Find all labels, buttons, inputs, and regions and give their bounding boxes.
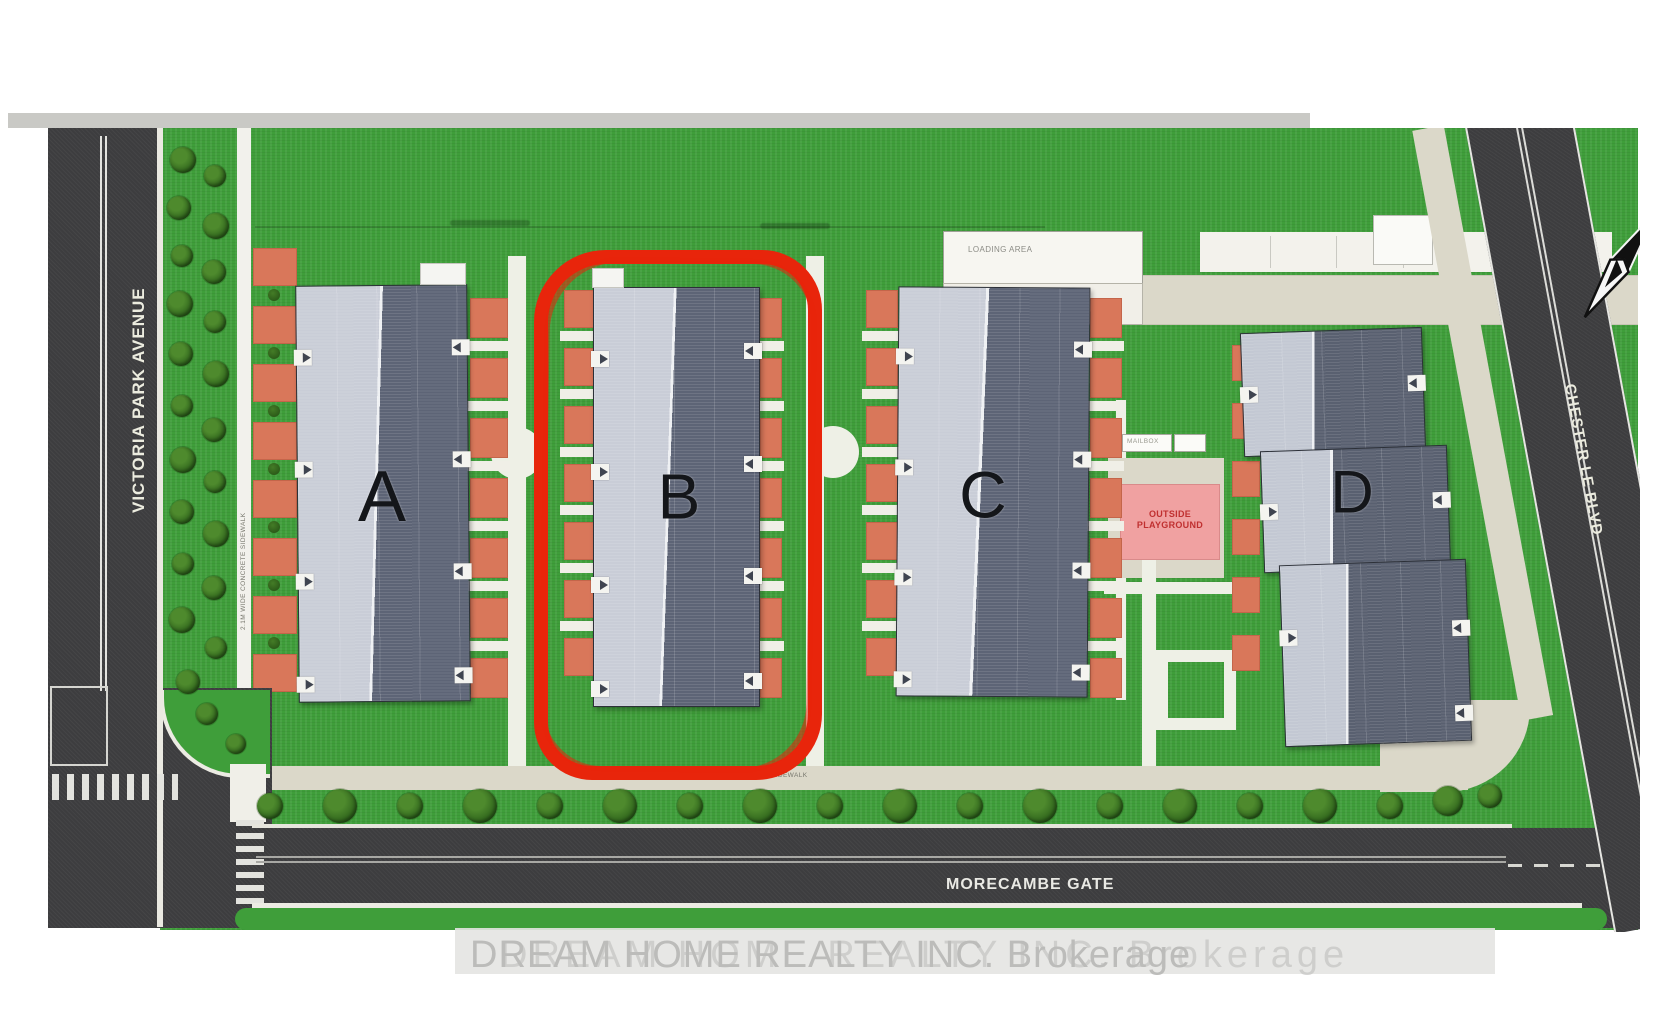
watermark-text: DREAM HOME REALTY INC. Brokerage — [470, 934, 1191, 977]
tree-icon — [170, 447, 196, 473]
tree-icon — [677, 793, 703, 819]
tree-icon — [817, 793, 843, 819]
entrance-notch — [1407, 375, 1426, 392]
walkway-stub — [466, 401, 510, 411]
property-line — [255, 226, 1045, 228]
tree-icon — [170, 500, 194, 524]
entrance-arrow-icon — [1075, 345, 1083, 355]
patio-terrace — [1090, 298, 1122, 338]
patio-terrace — [1090, 598, 1122, 638]
patio-terrace — [253, 480, 297, 518]
walkway-stub — [466, 641, 510, 651]
tree-icon — [463, 789, 497, 823]
shrub-icon — [268, 405, 280, 417]
entrance-notch — [1279, 630, 1298, 647]
building-b-highlight-circle — [534, 250, 822, 780]
patio-terrace — [1232, 461, 1260, 497]
loading-area-label: LOADING AREA — [968, 245, 1032, 254]
morecambe-centerline — [256, 861, 1506, 863]
mailbox-label: MAILBOX — [1127, 438, 1159, 445]
entrance-notch — [294, 349, 312, 365]
tree-icon — [171, 245, 193, 267]
tree-icon — [167, 196, 191, 220]
utility-box — [1174, 434, 1206, 452]
courtyard-square — [1156, 650, 1236, 730]
tree-icon — [196, 703, 218, 725]
entrance-arrow-icon — [904, 462, 912, 472]
playground-label-line2: PLAYGROUND — [1121, 520, 1219, 531]
street-label-morecambe: MORECAMBE GATE — [946, 876, 1114, 894]
patio-terrace — [470, 418, 508, 458]
walkway-stub — [862, 389, 900, 399]
walkway-stub — [1086, 461, 1124, 471]
tree-icon — [1303, 789, 1337, 823]
site-plan-page: LOADING AREA MAILBOX OUTSIDE PLAYGROUND … — [0, 0, 1680, 1034]
entrance-notch — [297, 677, 315, 693]
walkway-stub — [466, 521, 510, 531]
entrance-notch — [1072, 664, 1090, 680]
sidewalk-south — [252, 766, 1468, 790]
patio-terrace — [470, 358, 508, 398]
tree-icon — [603, 789, 637, 823]
entrance-arrow-icon — [1434, 495, 1442, 505]
top-margin — [1310, 110, 1640, 128]
patio-terrace — [253, 538, 297, 576]
patio-terrace — [253, 248, 297, 286]
entrance-arrow-icon — [303, 352, 311, 362]
stall-tick — [1336, 236, 1337, 268]
entrance-notch — [896, 349, 914, 365]
walkway-stub — [862, 331, 900, 341]
tree-icon — [167, 291, 193, 317]
vp-centerline — [100, 136, 102, 691]
entrance-notch — [453, 452, 471, 468]
entrance-notch — [895, 459, 913, 475]
vp-centerline — [105, 136, 107, 691]
walkway-stub — [862, 621, 900, 631]
tree-icon — [172, 553, 194, 575]
entrance-notch — [1074, 342, 1092, 358]
courtyard-path — [508, 256, 526, 768]
walkway-stub — [1086, 401, 1124, 411]
tree-icon — [203, 521, 229, 547]
entrance-notch — [1432, 492, 1451, 509]
walkway-stub — [466, 581, 510, 591]
entrance-arrow-icon — [456, 670, 464, 680]
patio-terrace — [1090, 658, 1122, 698]
patio-terrace — [866, 290, 898, 328]
building-a-label: A — [358, 461, 406, 533]
morecambe-centerline — [256, 856, 1506, 858]
entrance-notch — [455, 667, 473, 683]
curb-west — [157, 127, 163, 927]
patio-terrace — [866, 580, 898, 618]
entrance-arrow-icon — [304, 464, 312, 474]
tree-icon — [204, 311, 226, 333]
patio-terrace — [253, 364, 297, 402]
tree-icon — [1023, 789, 1057, 823]
tree-icon — [169, 342, 193, 366]
patio-terrace — [1232, 635, 1260, 671]
stall-tick — [1270, 236, 1271, 268]
street-label-victoria-park: VICTORIA PARK AVENUE — [129, 293, 155, 513]
entrance-notch — [1073, 452, 1091, 468]
tree-icon — [176, 670, 200, 694]
victoria-park-road — [48, 127, 160, 928]
tree-icon — [169, 607, 195, 633]
tree-icon — [226, 734, 246, 754]
entrance-arrow-icon — [1249, 390, 1257, 400]
tree-icon — [204, 165, 226, 187]
boulevard-strip — [235, 908, 1607, 930]
patio-terrace — [866, 406, 898, 444]
entrance-notch — [1072, 562, 1090, 578]
patio-terrace — [253, 654, 297, 692]
curb-morecambe-north — [252, 824, 1512, 828]
entrance-arrow-icon — [1288, 633, 1296, 643]
shrub-icon — [268, 521, 280, 533]
patio-terrace — [866, 348, 898, 386]
patio-terrace — [253, 306, 297, 344]
playground-label-line1: OUTSIDE — [1121, 509, 1219, 520]
site-plan-map: LOADING AREA MAILBOX OUTSIDE PLAYGROUND … — [0, 0, 1680, 1034]
patio-terrace — [866, 464, 898, 502]
shrub-icon — [268, 347, 280, 359]
tree-icon — [205, 637, 227, 659]
building-d-label: D — [1330, 463, 1373, 523]
tree-icon — [1433, 786, 1463, 816]
tree-icon — [883, 789, 917, 823]
entrance-notch — [894, 569, 912, 585]
entrance-arrow-icon — [453, 343, 461, 353]
tree-icon — [397, 793, 423, 819]
patio-terrace — [1090, 538, 1122, 578]
survey-note-smudge — [450, 220, 530, 226]
tree-icon — [957, 793, 983, 819]
patio-terrace — [1090, 418, 1122, 458]
patio-terrace — [1090, 358, 1122, 398]
building-d-block1 — [1240, 327, 1426, 457]
walkway-stub — [862, 447, 900, 457]
entrance-arrow-icon — [905, 352, 913, 362]
tree-icon — [202, 576, 226, 600]
patio-terrace — [253, 596, 297, 634]
entrance-arrow-icon — [1453, 623, 1461, 633]
patio-terrace — [470, 538, 508, 578]
entrance-notch — [894, 671, 912, 687]
tree-icon — [1377, 793, 1403, 819]
shrub-icon — [268, 579, 280, 591]
survey-note-smudge — [760, 223, 830, 229]
outside-playground: OUTSIDE PLAYGROUND — [1120, 484, 1220, 560]
entrance-notch — [1452, 620, 1471, 637]
entrance-arrow-icon — [1409, 378, 1417, 388]
building-c-label: C — [959, 461, 1007, 527]
walkway-stub — [466, 461, 510, 471]
entrance-notch — [452, 339, 470, 355]
tree-icon — [202, 418, 226, 442]
shrub-icon — [268, 463, 280, 475]
entrance-arrow-icon — [1456, 708, 1464, 718]
courtyard-path — [1142, 560, 1156, 766]
patio-terrace — [253, 422, 297, 460]
entrance-notch — [1260, 504, 1279, 521]
tree-icon — [203, 361, 229, 387]
entrance-arrow-icon — [1073, 565, 1081, 575]
entrance-notch — [1240, 387, 1259, 404]
patio-terrace — [470, 598, 508, 638]
patio-terrace — [470, 298, 508, 338]
tree-icon — [203, 213, 229, 239]
shrub-icon — [268, 289, 280, 301]
utility-pad — [1373, 215, 1433, 265]
building-d-block3 — [1279, 559, 1472, 747]
tree-icon — [170, 147, 196, 173]
tree-icon — [1163, 789, 1197, 823]
crosswalk-west — [52, 774, 178, 800]
patio-terrace — [470, 658, 508, 698]
tree-icon — [743, 789, 777, 823]
top-border-bar — [8, 113, 1310, 128]
patio-terrace — [1232, 577, 1260, 613]
tree-icon — [323, 789, 357, 823]
walkway-stub — [862, 505, 900, 515]
entrance-arrow-icon — [306, 680, 314, 690]
entrance-arrow-icon — [455, 567, 463, 577]
entrance-notch — [1455, 705, 1474, 722]
entrance-notch — [454, 564, 472, 580]
tree-icon — [204, 471, 226, 493]
entrance-arrow-icon — [454, 455, 462, 465]
walkway-stub — [1086, 581, 1124, 591]
patio-terrace — [470, 478, 508, 518]
entrance-arrow-icon — [305, 576, 313, 586]
walkway-stub — [1086, 641, 1124, 651]
entrance-arrow-icon — [1269, 507, 1277, 517]
entrance-arrow-icon — [1073, 667, 1081, 677]
sidewalk-note: 2.1M WIDE CONCRETE SIDEWALK — [240, 470, 247, 630]
tree-icon — [1237, 793, 1263, 819]
tree-icon — [257, 793, 283, 819]
entrance-arrow-icon — [903, 572, 911, 582]
tree-icon — [171, 395, 193, 417]
tree-icon — [537, 793, 563, 819]
tree-icon — [1478, 784, 1502, 808]
entrance-arrow-icon — [903, 674, 911, 684]
tree-icon — [202, 260, 226, 284]
tree-icon — [1097, 793, 1123, 819]
entrance-notch — [295, 461, 313, 477]
patio-terrace — [1232, 519, 1260, 555]
entrance-notch — [296, 573, 314, 589]
walkway-stub — [1086, 521, 1124, 531]
walkway-stub — [466, 341, 510, 351]
loading-area — [943, 231, 1143, 285]
parking-box-marking — [50, 686, 108, 766]
shrub-icon — [268, 637, 280, 649]
patio-terrace — [1090, 478, 1122, 518]
rooftop-unit — [420, 263, 466, 285]
entrance-arrow-icon — [1074, 455, 1082, 465]
patio-terrace — [866, 522, 898, 560]
